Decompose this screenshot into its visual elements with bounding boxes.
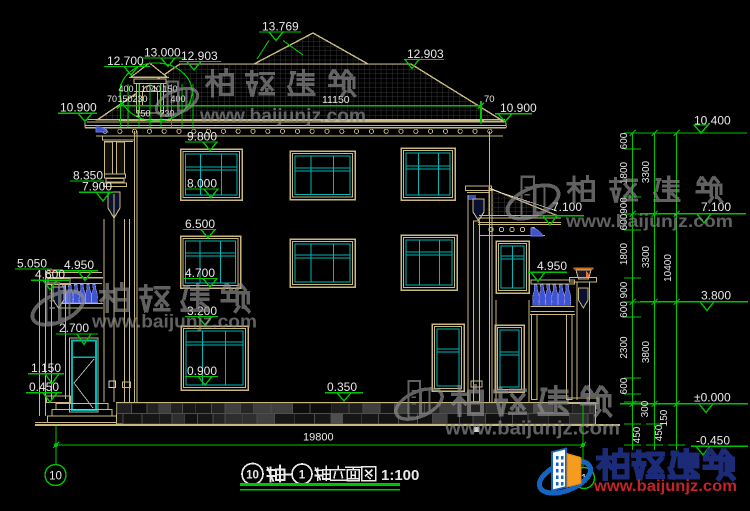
- svg-text:7.900: 7.900: [82, 180, 112, 194]
- svg-text:4.600: 4.600: [35, 268, 65, 282]
- svg-text:-0.450: -0.450: [696, 434, 730, 448]
- svg-text:1.150: 1.150: [31, 361, 61, 375]
- svg-text:0.350: 0.350: [327, 380, 357, 394]
- svg-text:70: 70: [484, 94, 495, 105]
- svg-text:3800: 3800: [641, 340, 652, 363]
- svg-text:2.700: 2.700: [59, 321, 89, 335]
- svg-text:10.900: 10.900: [500, 101, 537, 115]
- svg-text:3300: 3300: [641, 245, 652, 268]
- svg-text:450: 450: [632, 426, 643, 443]
- svg-text:www.baijunjz.com: www.baijunjz.com: [91, 312, 257, 332]
- svg-text:0.450: 0.450: [29, 380, 59, 394]
- svg-text:10400: 10400: [663, 254, 674, 282]
- svg-text:900: 900: [619, 281, 630, 298]
- svg-text:1800: 1800: [619, 242, 630, 265]
- svg-text:600: 600: [619, 132, 630, 149]
- svg-text:600: 600: [619, 301, 630, 318]
- svg-text:150: 150: [135, 109, 150, 119]
- svg-text:www.baijunjz.com: www.baijunjz.com: [444, 419, 620, 440]
- svg-text:400: 400: [118, 84, 133, 94]
- svg-text:±0.000: ±0.000: [694, 391, 731, 405]
- svg-text:1040: 1040: [141, 84, 161, 94]
- svg-text:4.950: 4.950: [537, 259, 567, 273]
- svg-text:3300: 3300: [641, 160, 652, 183]
- svg-text:230: 230: [132, 94, 147, 104]
- svg-text:1:100: 1:100: [381, 467, 419, 484]
- svg-text:600: 600: [619, 377, 630, 394]
- svg-text:www.baijunjz.com: www.baijunjz.com: [593, 478, 737, 495]
- svg-text:3.800: 3.800: [701, 289, 731, 303]
- svg-text:10: 10: [49, 471, 62, 483]
- svg-text:10: 10: [246, 470, 259, 482]
- svg-text:www.baijunjz.com: www.baijunjz.com: [199, 105, 366, 127]
- svg-text:150: 150: [659, 409, 670, 426]
- svg-text:300: 300: [640, 400, 651, 417]
- svg-text:www.baijunjz.com: www.baijunjz.com: [565, 211, 733, 231]
- svg-text:70: 70: [107, 94, 117, 104]
- svg-text:2300: 2300: [619, 336, 630, 359]
- svg-text:150: 150: [117, 94, 132, 104]
- svg-text:4.950: 4.950: [64, 258, 94, 272]
- svg-text:19800: 19800: [303, 432, 334, 444]
- svg-text:10.900: 10.900: [60, 101, 97, 115]
- svg-text:1: 1: [299, 470, 306, 482]
